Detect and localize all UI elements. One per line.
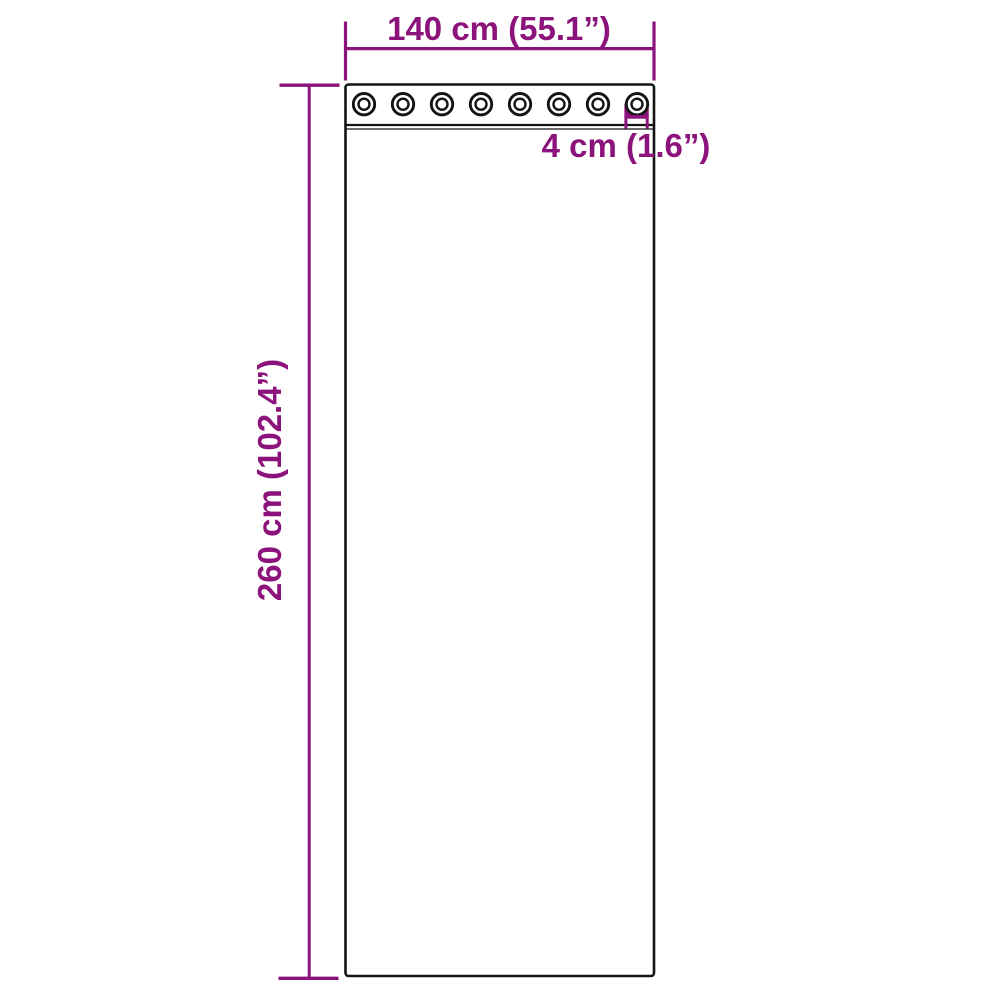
svg-text:140 cm (55.1”): 140 cm (55.1”) — [387, 10, 611, 47]
svg-text:4 cm (1.6”): 4 cm (1.6”) — [542, 127, 711, 164]
svg-text:260 cm (102.4”): 260 cm (102.4”) — [251, 359, 288, 601]
